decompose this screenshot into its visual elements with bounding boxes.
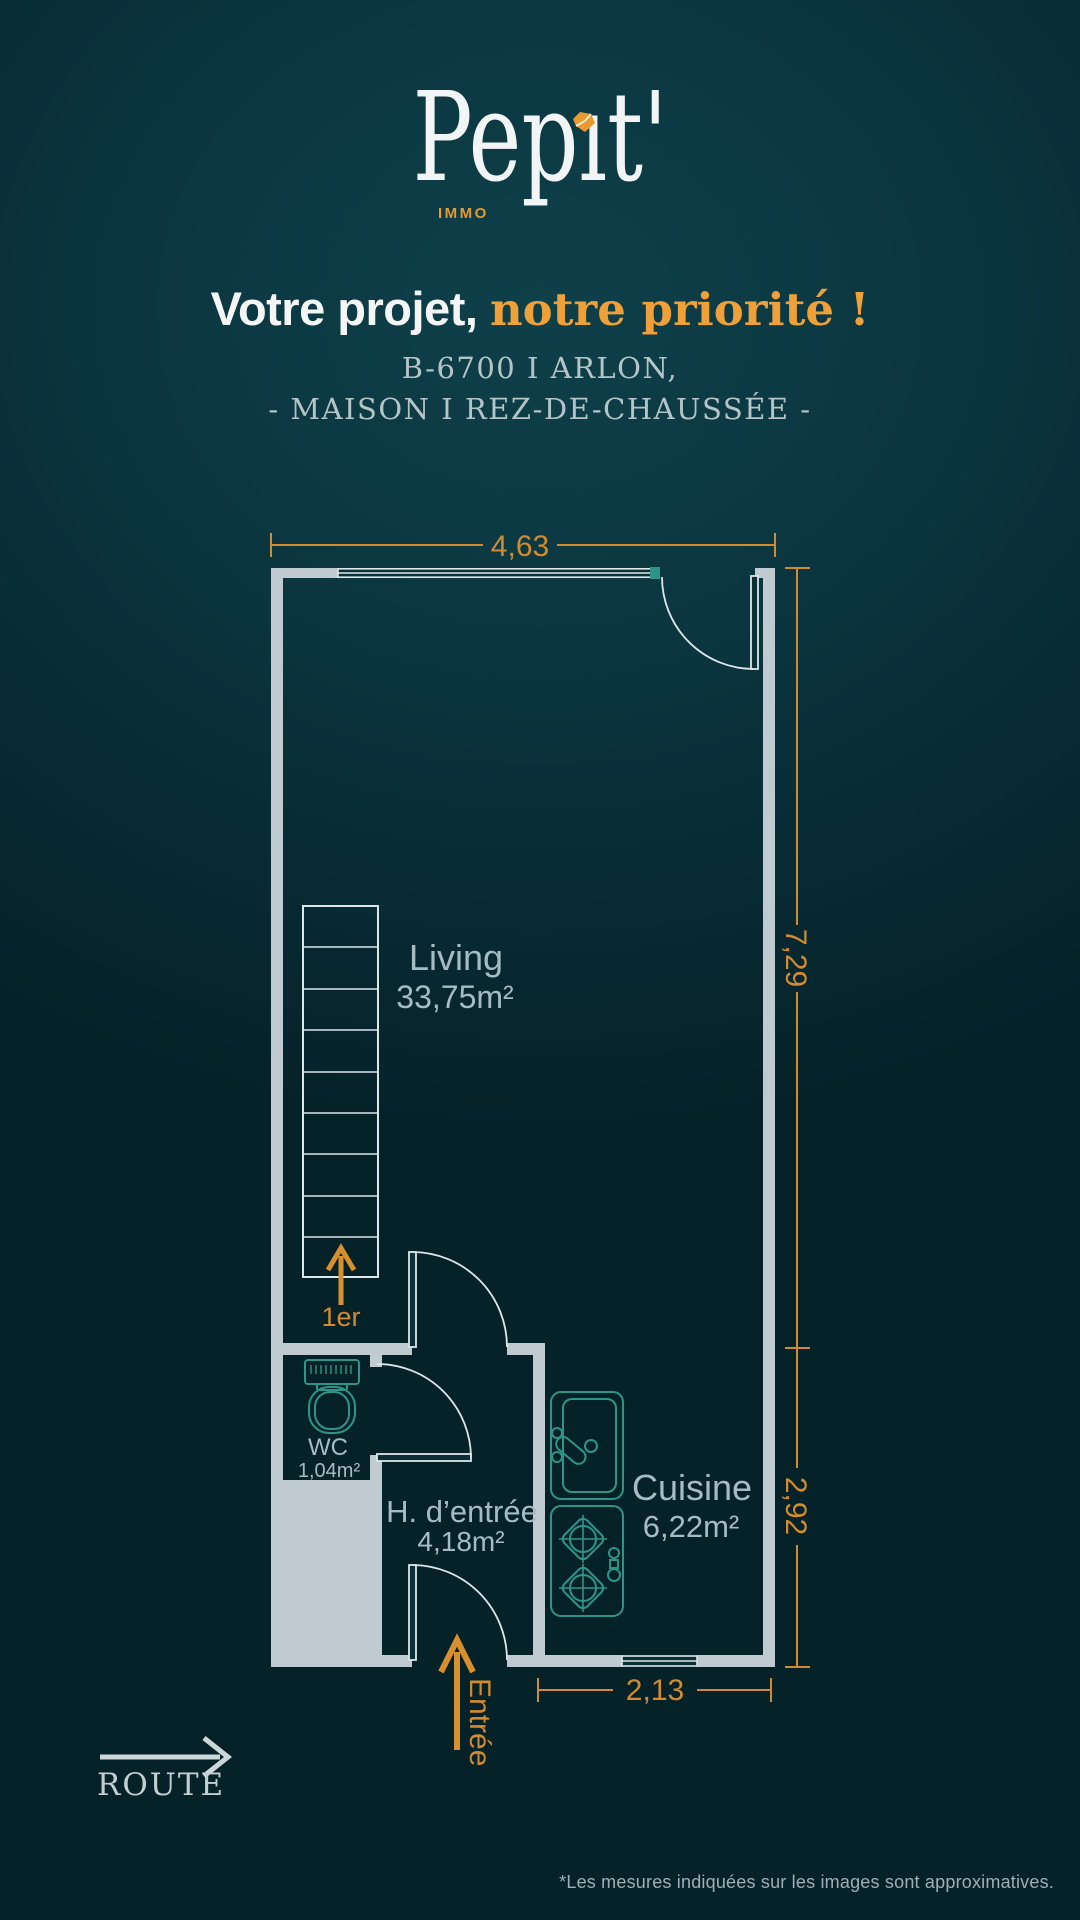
stairs-label: 1er [321,1302,360,1332]
burner [559,1564,607,1612]
entrance-label: Entrée [463,1678,496,1766]
dim-right-upper: 7,29 [779,929,812,987]
annex-block [271,1480,382,1667]
room-area-living: 33,75m² [396,979,514,1015]
flyer-canvas: Pepıt' IMMO Votre projet, notre priorité… [0,0,1080,1920]
room-area-hall: 4,18m² [417,1526,504,1557]
dim-right-lower: 2,92 [779,1477,812,1535]
footnote: *Les mesures indiquées sur les images so… [559,1872,1054,1893]
stairs [303,906,378,1277]
road-label: ROUTE [97,1767,225,1803]
toilet-icon [305,1360,359,1433]
door-front-facade [662,576,758,669]
door-living-hall [409,1252,507,1347]
room-name-living: Living [409,937,503,978]
burner [559,1515,607,1563]
door-wc [377,1364,471,1461]
stove-icon [551,1506,623,1616]
floor-plan: 1er [0,0,1080,1920]
dim-top: 4,63 [491,530,549,563]
room-name-hall: H. d’entrée [386,1494,538,1529]
sink-icon [551,1392,623,1499]
room-name-wc: WC [308,1434,348,1461]
room-name-cuisine: Cuisine [632,1467,752,1508]
room-area-cuisine: 6,22m² [643,1509,739,1544]
room-area-wc: 1,04m² [298,1460,361,1482]
window-end-cap [650,567,660,579]
dim-bottom: 2,13 [626,1674,684,1707]
